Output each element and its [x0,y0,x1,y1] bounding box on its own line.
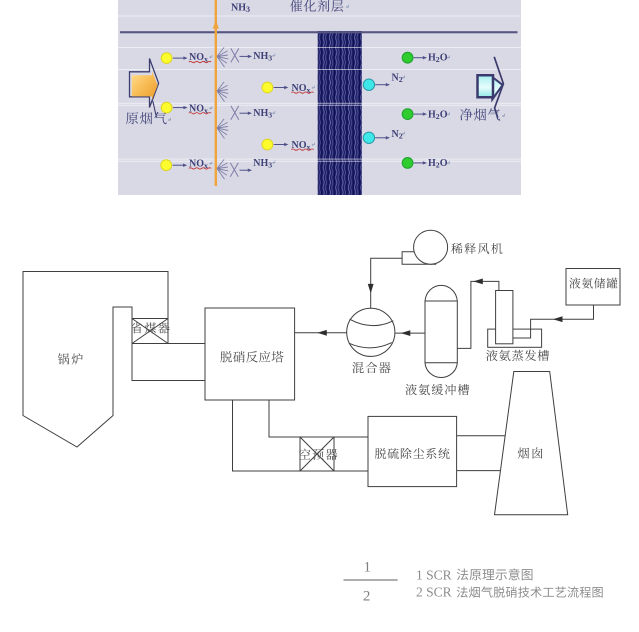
svg-text:H2O: H2O [428,109,448,121]
svg-text:N2: N2 [392,73,403,85]
svg-text:1 SCR: 1 SCR [416,567,452,582]
svg-text:NH3: NH3 [253,108,272,120]
svg-text:N2: N2 [392,129,403,141]
svg-text:H2O: H2O [428,53,448,65]
svg-text:2: 2 [363,588,371,604]
svg-text:NH3: NH3 [253,51,272,63]
svg-text:NH3: NH3 [231,2,250,14]
svg-text:NH3: NH3 [253,158,272,170]
svg-text:2 SCR: 2 SCR [416,585,452,600]
svg-text:1: 1 [364,560,372,576]
svg-text:H2O: H2O [428,158,448,170]
